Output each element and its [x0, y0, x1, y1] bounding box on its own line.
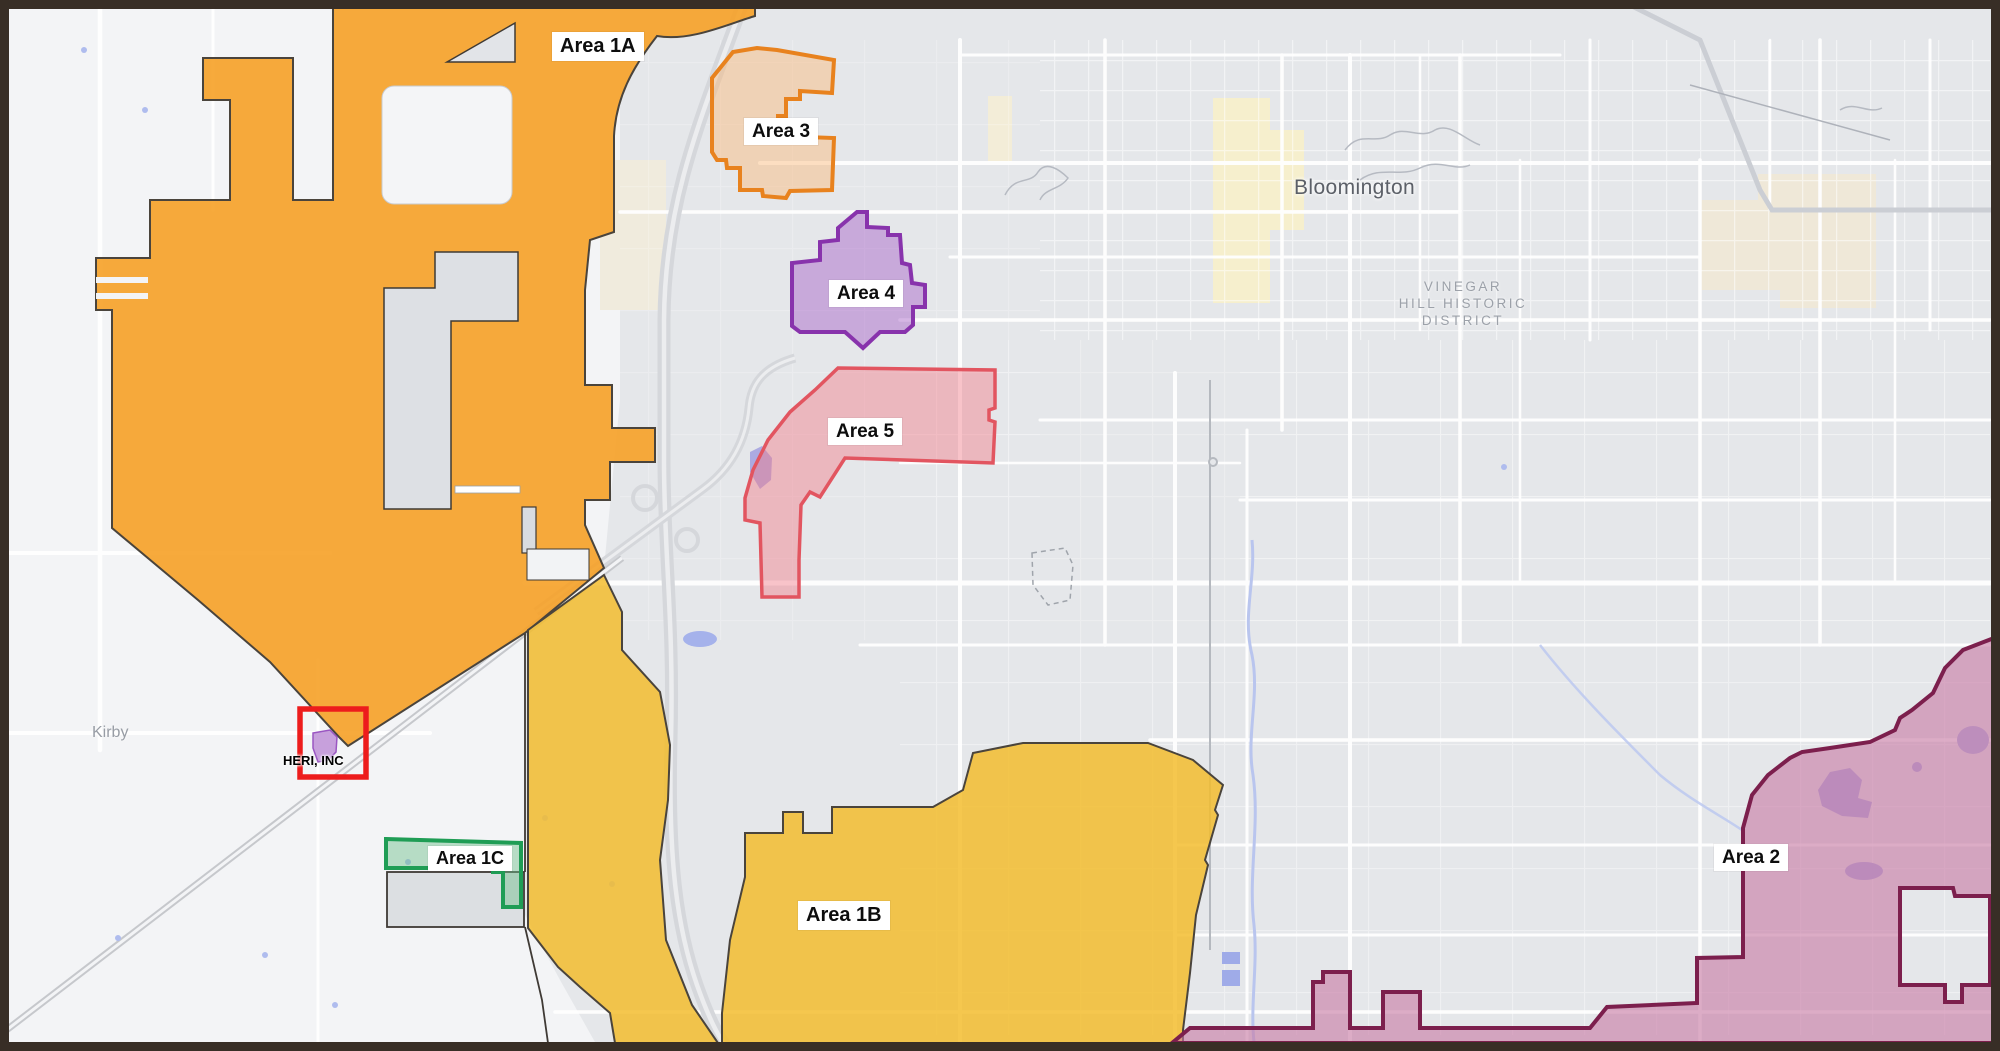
area-5-label: Area 5 [828, 418, 902, 445]
town-name-label: Kirby [92, 724, 128, 742]
area-1c-label: Area 1C [428, 846, 512, 871]
historic-district-label: VINEGAR HILL HISTORIC DISTRICT [1353, 278, 1573, 329]
area-1a-label: Area 1A [552, 32, 644, 61]
map-viewport[interactable]: Area 1A Area 3 Area 4 Area 5 Area 1C Are… [0, 0, 2000, 1051]
area-1b-label: Area 1B [798, 901, 890, 930]
area-4-label: Area 4 [829, 280, 903, 307]
white-slit [96, 293, 148, 299]
area-2-label: Area 2 [1714, 844, 1788, 871]
map-canvas[interactable] [0, 0, 2000, 1051]
area-3-label: Area 3 [744, 118, 818, 145]
pool [1222, 970, 1240, 986]
white-bar [455, 486, 520, 493]
pool [1222, 952, 1240, 964]
gray-enclave [522, 507, 536, 553]
heri-site-label: HERI, INC [283, 753, 344, 768]
rail-node [1209, 458, 1217, 466]
white-enclave [382, 86, 512, 204]
city-name-label: Bloomington [1294, 176, 1415, 200]
white-enclave [527, 549, 589, 580]
white-slit [96, 277, 148, 283]
lake [683, 631, 717, 647]
